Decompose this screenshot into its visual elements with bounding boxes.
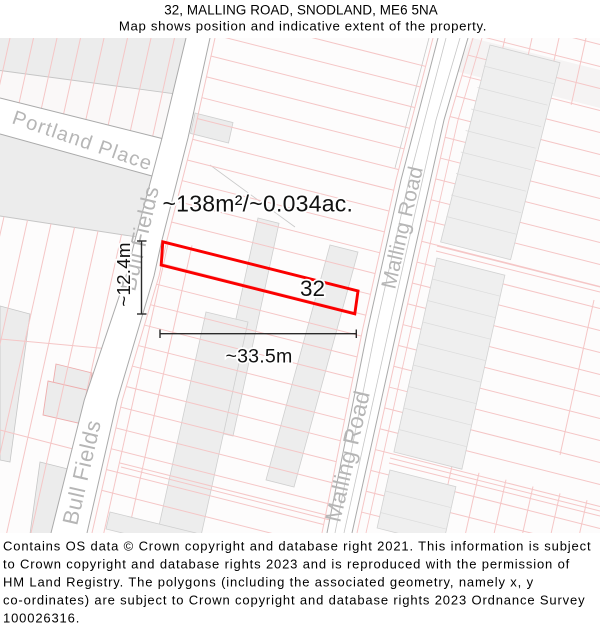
svg-text:~138m²/~0.034ac.: ~138m²/~0.034ac. xyxy=(163,191,354,217)
svg-text:32, MALLING ROAD, SNODLAND, ME: 32, MALLING ROAD, SNODLAND, ME6 5NA xyxy=(164,3,438,18)
svg-text:to Crown copyright and databas: to Crown copyright and database rights 2… xyxy=(3,557,570,572)
svg-text:~12.4m: ~12.4m xyxy=(113,242,134,306)
svg-text:32: 32 xyxy=(300,276,325,301)
svg-text:co-ordinates) are subject to C: co-ordinates) are subject to Crown copyr… xyxy=(3,593,585,608)
svg-text:~33.5m: ~33.5m xyxy=(225,346,292,368)
svg-text:100026316.: 100026316. xyxy=(3,611,80,625)
svg-text:Map shows position and indicat: Map shows position and indicative extent… xyxy=(119,18,487,33)
svg-text:Contains OS data © Crown copyr: Contains OS data © Crown copyright and d… xyxy=(3,539,591,554)
svg-text:HM Land Registry. The polygons: HM Land Registry. The polygons (includin… xyxy=(3,575,534,590)
